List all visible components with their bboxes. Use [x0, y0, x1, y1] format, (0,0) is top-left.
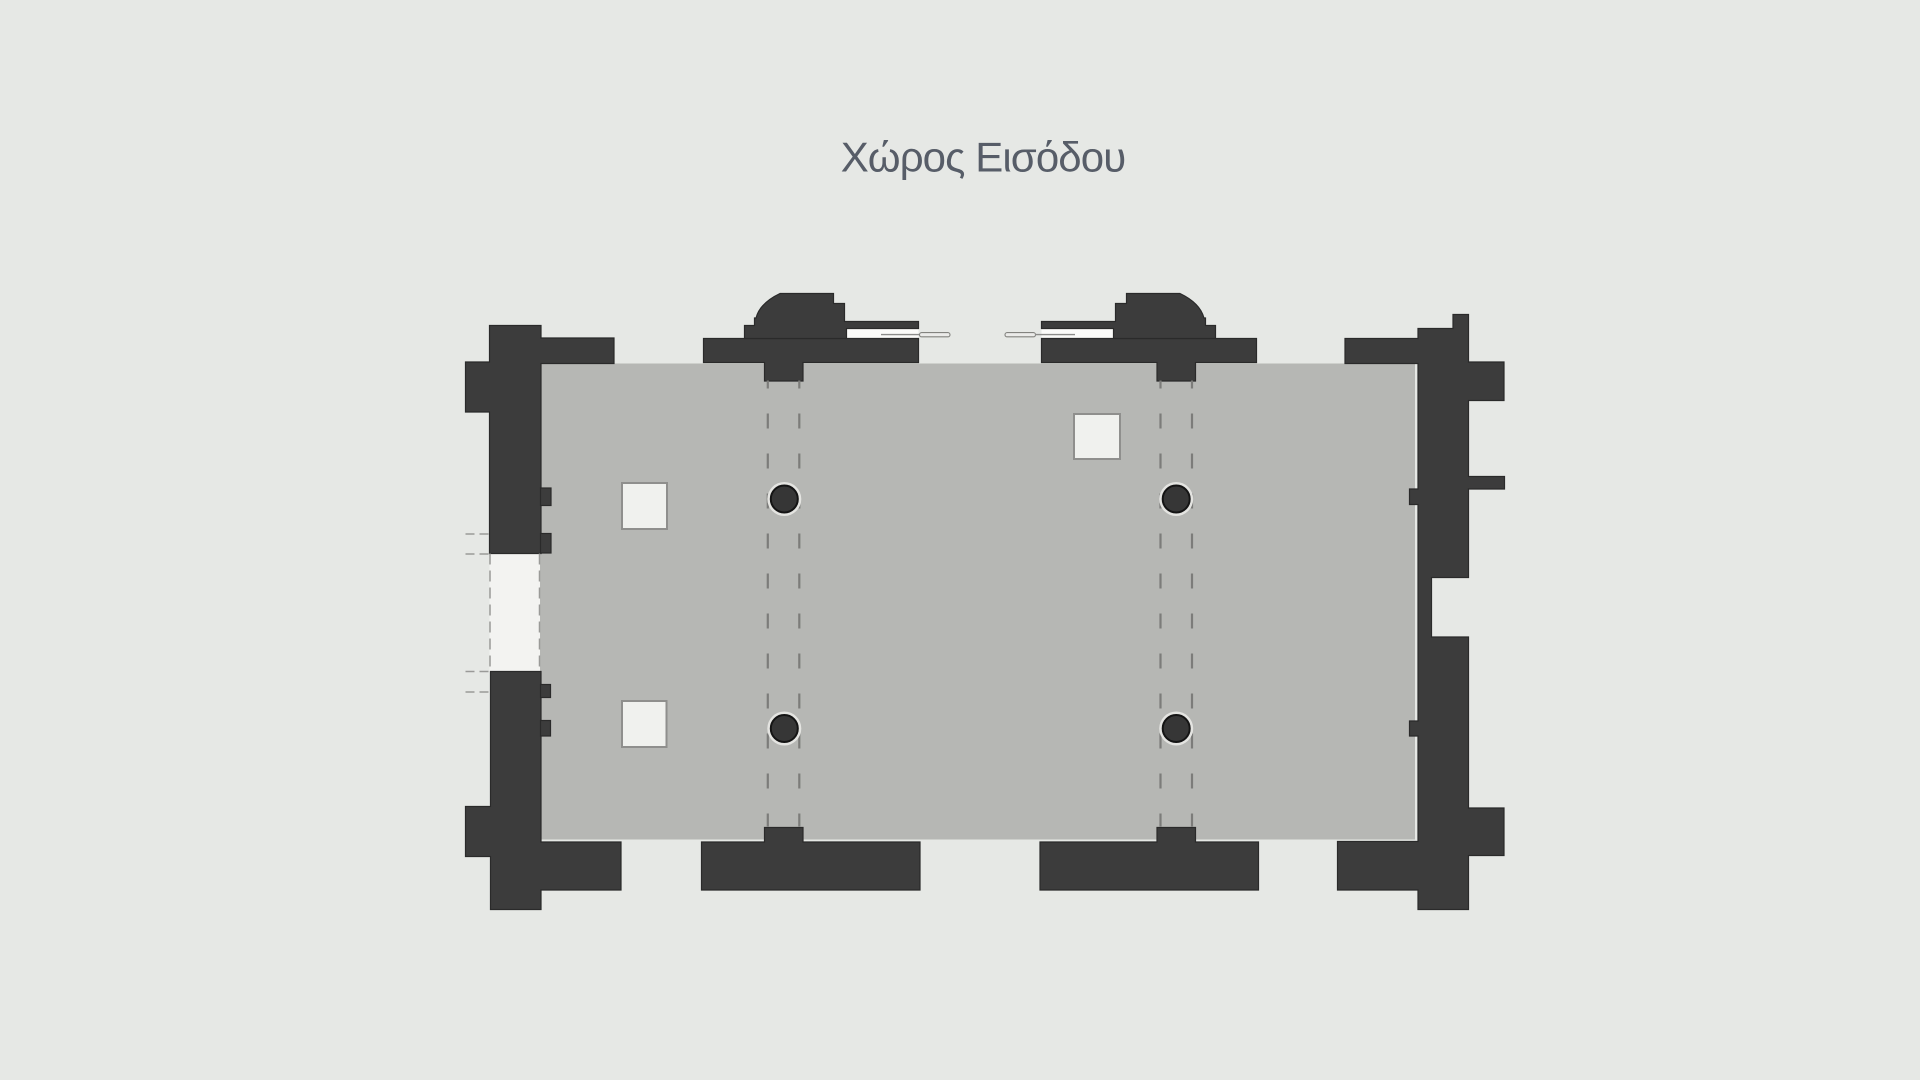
svg-text:Χώρος Εισόδου: Χώρος Εισόδου: [841, 134, 1126, 181]
